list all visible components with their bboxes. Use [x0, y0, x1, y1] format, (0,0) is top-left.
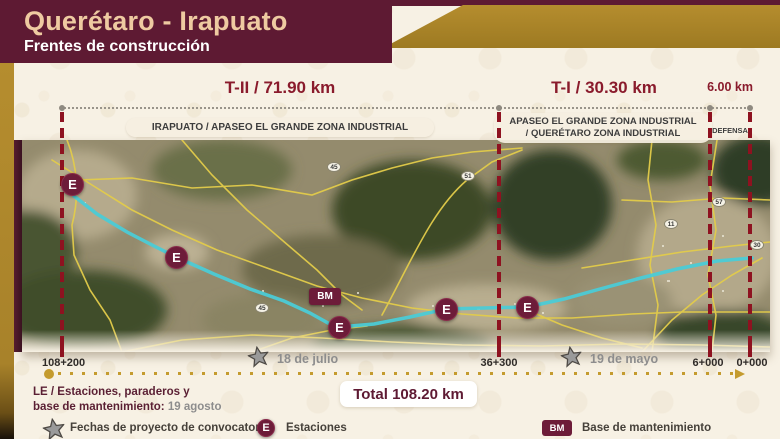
progress-arrow-icon	[735, 369, 745, 379]
boundary-dashed-line	[708, 112, 712, 352]
legend-le-date: 19 agosto	[168, 401, 222, 413]
chainage-tick	[708, 339, 712, 357]
timeline-endpoint-dot	[59, 105, 65, 111]
milestone-date: 19 de mayo	[590, 352, 658, 366]
station-letter: E	[172, 250, 181, 265]
segment-t2-label: T-II / 71.90 km	[120, 78, 440, 98]
station-letter: E	[523, 300, 532, 315]
legend-station-badge: E	[257, 419, 275, 437]
progress-dotted-line	[58, 372, 734, 375]
road-shield: 30	[750, 240, 764, 250]
chainage-tick	[748, 339, 752, 357]
zone-pill-t2: IRAPUATO / APASEO EL GRANDE ZONA INDUSTR…	[126, 118, 434, 137]
milestone-star-icon	[561, 346, 582, 367]
legend-station-letter: E	[262, 422, 269, 434]
total-distance-box: Total 108.20 km	[340, 381, 477, 407]
zone-pill-t1-line2: / QUERÉTARO ZONA INDUSTRIAL	[526, 128, 681, 139]
road-shield: 11	[664, 219, 678, 229]
legend-le-line2: base de mantenimiento:	[33, 401, 165, 413]
boundary-dashed-line	[497, 112, 501, 352]
station-letter: E	[68, 177, 77, 192]
milestone-star-icon	[248, 346, 269, 367]
legend-star-label: Fechas de proyecto de convocatoria	[70, 422, 269, 434]
satellite-map-image	[22, 140, 770, 352]
map-left-edge-shadow	[13, 140, 22, 352]
legend-star-icon	[43, 418, 65, 439]
road-shield: 57	[712, 197, 726, 207]
chainage-tick	[60, 339, 64, 357]
road-shield: 45	[255, 303, 269, 313]
bm-marker: BM	[309, 288, 341, 305]
station-marker: E	[61, 173, 84, 196]
chainage-label: 36+300	[471, 357, 527, 369]
page-title: Querétaro - Irapuato	[24, 7, 392, 37]
timeline-dotted-line	[60, 107, 750, 109]
timeline-endpoint-dot	[496, 105, 502, 111]
header: Querétaro - Irapuato Frentes de construc…	[0, 0, 392, 63]
legend-le-note: LE / Estaciones, paraderos y base de man…	[33, 385, 222, 415]
chainage-tick	[497, 339, 501, 357]
page-subtitle: Frentes de construcción	[24, 38, 392, 56]
boundary-dashed-line	[60, 112, 64, 352]
progress-start-dot	[44, 369, 54, 379]
station-letter: E	[335, 320, 344, 335]
segment-defensa-length: 6.00 km	[690, 80, 770, 94]
legend-station-label: Estaciones	[286, 422, 347, 434]
station-marker: E	[328, 316, 351, 339]
legend-le-line1: LE / Estaciones, paraderos y	[33, 386, 190, 398]
station-letter: E	[442, 302, 451, 317]
station-marker: E	[516, 296, 539, 319]
defensa-label: DEFENSA	[708, 126, 752, 135]
satellite-map	[22, 140, 770, 352]
slide-background: Querétaro - Irapuato Frentes de construc…	[0, 0, 780, 439]
gold-left-bar	[0, 63, 14, 439]
zone-pill-t1-line1: APASEO EL GRANDE ZONA INDUSTRIAL	[509, 116, 696, 127]
road-shield: 51	[461, 171, 475, 181]
milestone-date: 18 de julio	[277, 352, 338, 366]
timeline-endpoint-dot	[747, 105, 753, 111]
chainage-label: 6+000	[684, 357, 732, 369]
legend-bm-badge: BM	[542, 420, 572, 436]
station-marker: E	[435, 298, 458, 321]
legend-bm-label: Base de mantenimiento	[582, 422, 711, 434]
road-shield: 45	[327, 162, 341, 172]
gold-top-bar	[383, 5, 780, 48]
boundary-dashed-line	[748, 112, 752, 352]
timeline-endpoint-dot	[707, 105, 713, 111]
zone-pill-t1: APASEO EL GRANDE ZONA INDUSTRIAL / QUERÉ…	[494, 113, 712, 143]
station-marker: E	[165, 246, 188, 269]
chainage-label: 0+000	[728, 357, 776, 369]
chainage-label: 108+200	[42, 357, 85, 369]
